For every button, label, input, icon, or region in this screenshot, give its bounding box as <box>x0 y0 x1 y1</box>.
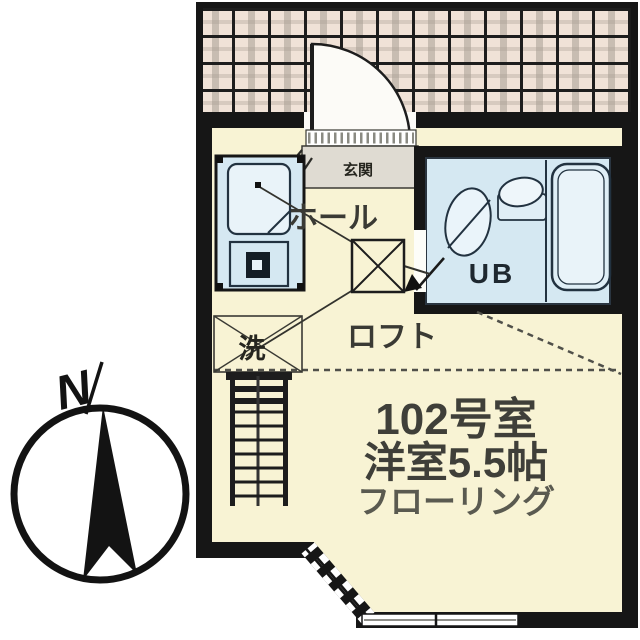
north-label: N <box>50 361 98 421</box>
window-south <box>362 614 518 626</box>
floor-plan: 玄関 UB <box>0 0 640 640</box>
floor-plan-page: 玄関 UB <box>0 0 640 640</box>
room-number: 102号室 <box>375 394 536 444</box>
entrance-label: 玄関 <box>343 161 373 179</box>
compass: N <box>14 361 186 580</box>
room-flooring: フローリング <box>357 483 555 520</box>
laundry-label: 洗 <box>239 334 266 364</box>
unit-bath-label: UB <box>469 258 515 289</box>
north-arrow-icon <box>83 406 137 580</box>
hall-label: ホール <box>288 202 378 235</box>
room-info: 102号室 洋室5.5帖 フローリング <box>357 394 555 520</box>
loft-label: ロフト <box>347 321 437 354</box>
unit-bath: UB <box>404 146 630 314</box>
corridor-tiles <box>196 2 638 114</box>
room-size: 洋室5.5帖 <box>364 439 548 486</box>
